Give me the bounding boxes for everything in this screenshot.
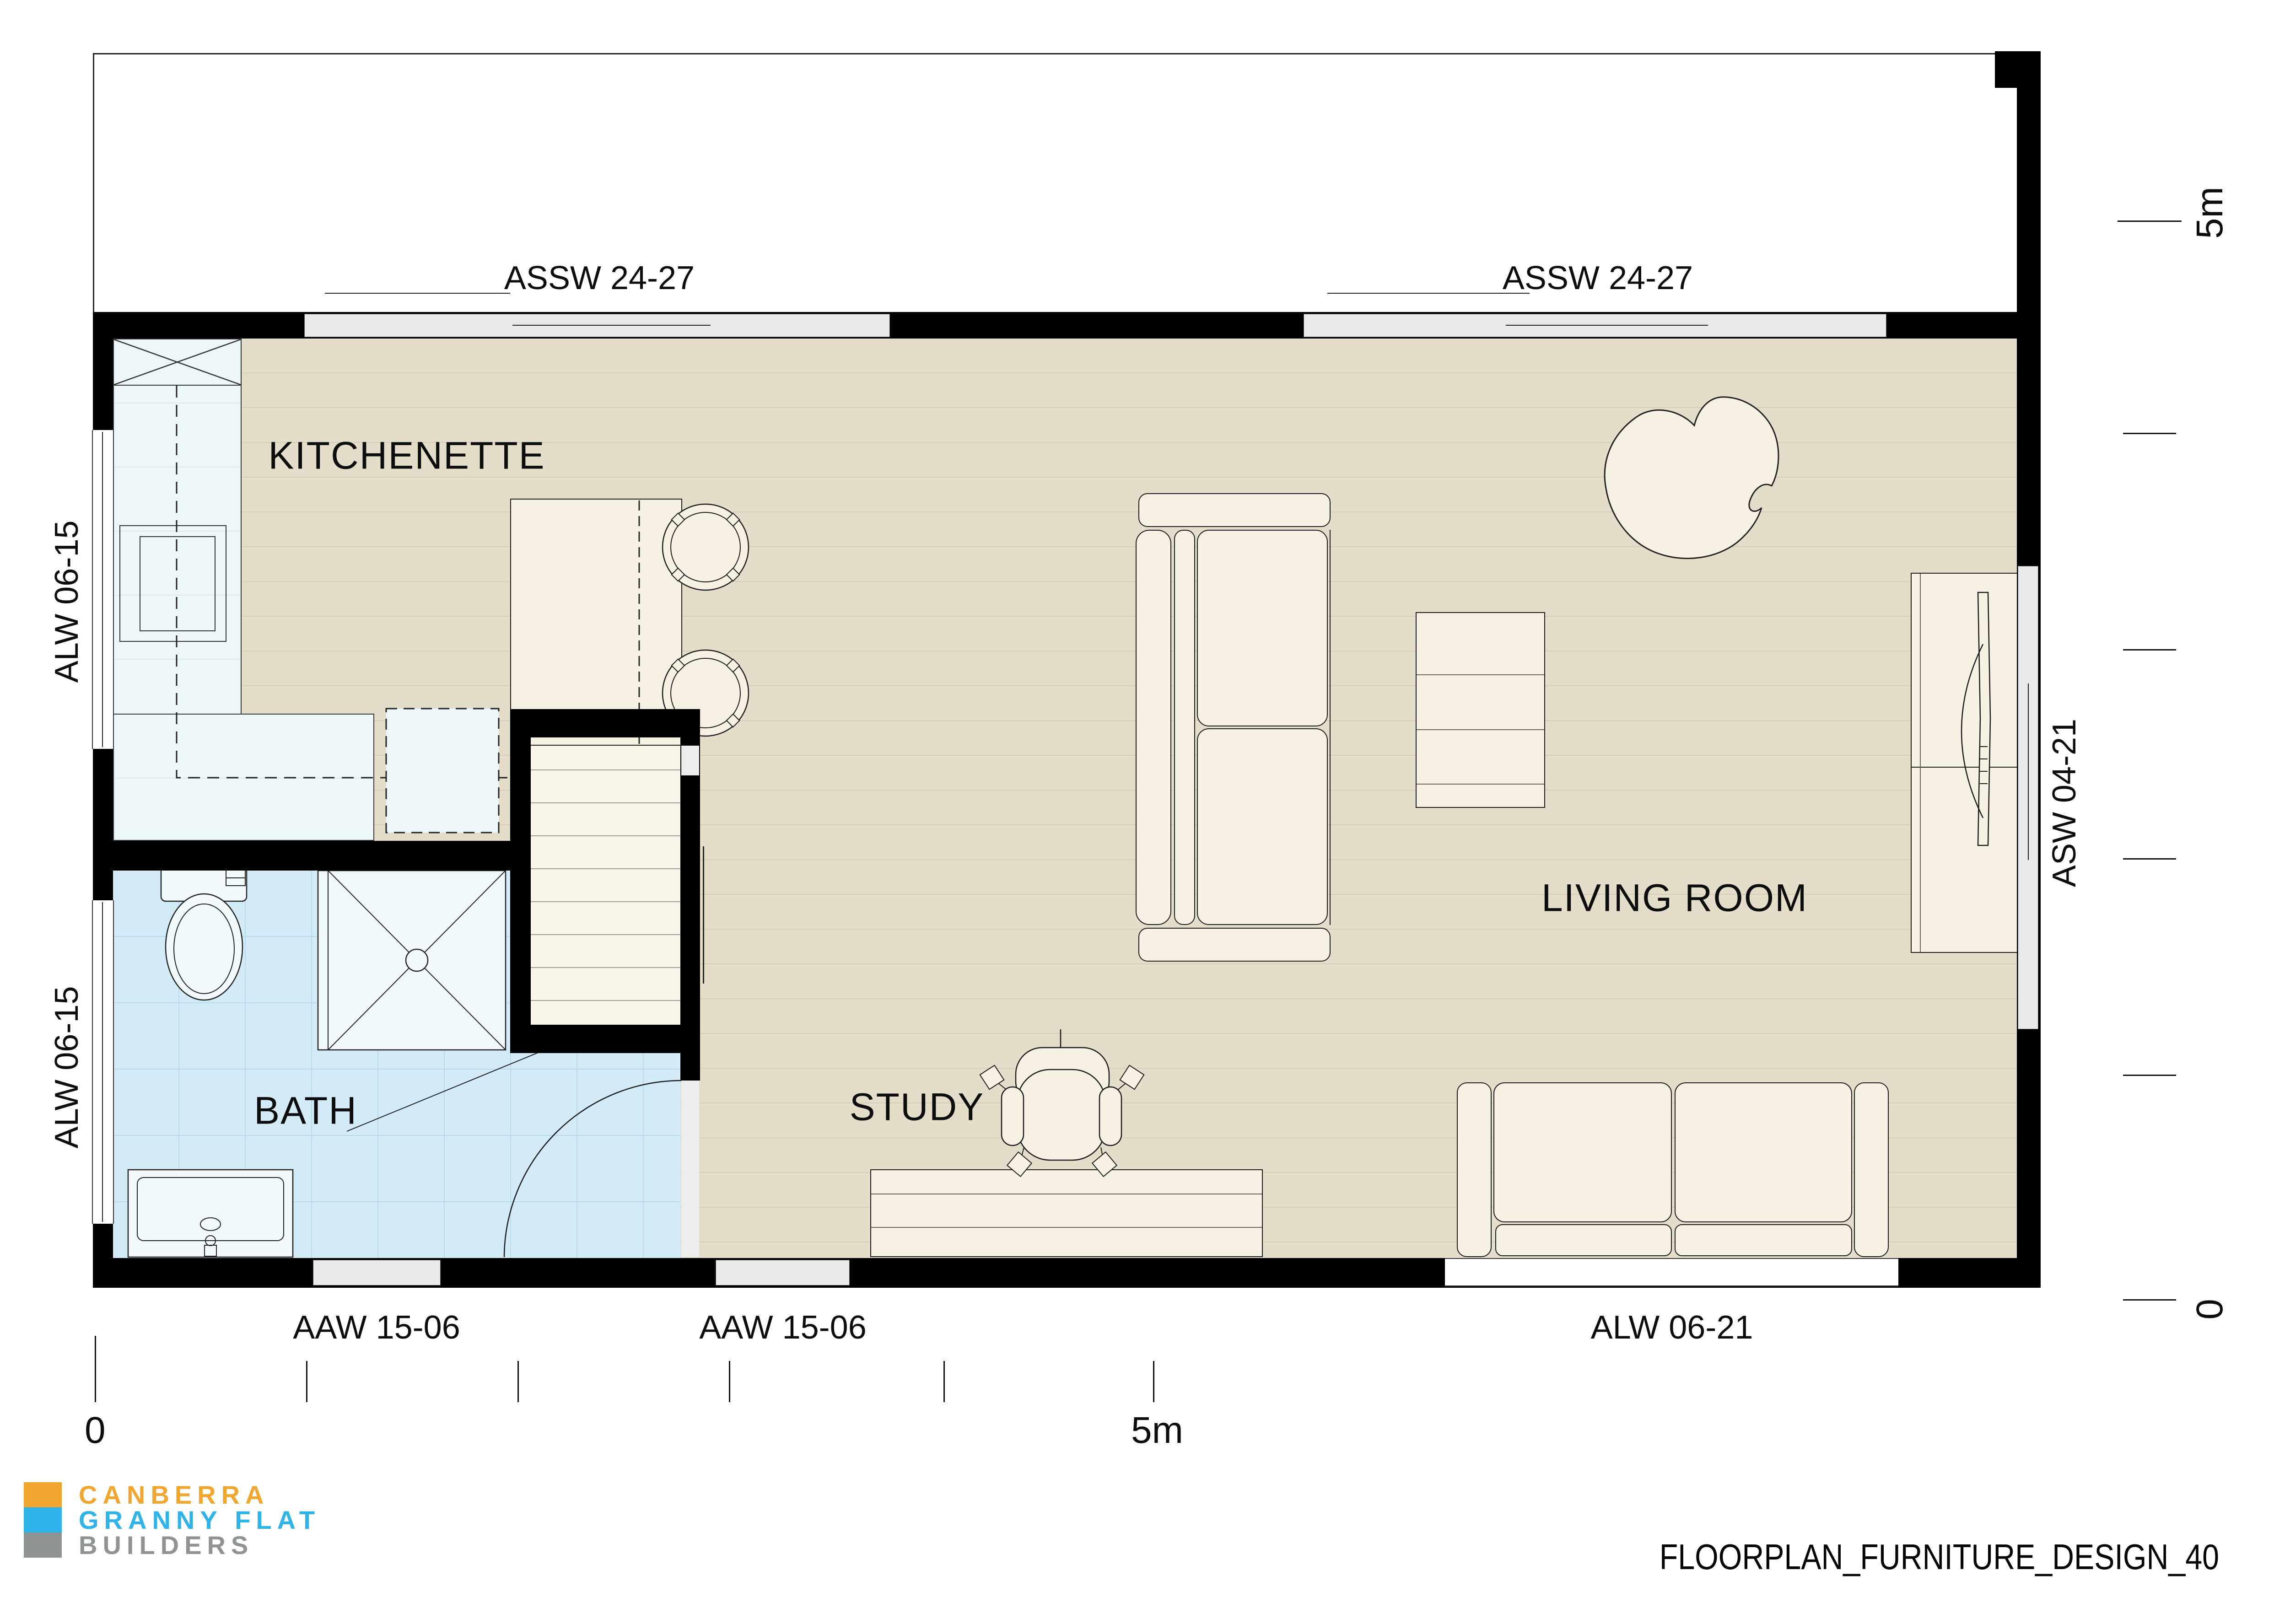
ruler-tick	[95, 1336, 96, 1402]
window-dim-line	[1327, 293, 1530, 294]
toilet-icon	[161, 865, 247, 1000]
tv-icon	[1961, 592, 1990, 845]
closet-opening	[681, 746, 699, 775]
ruler-tick	[2123, 858, 2176, 860]
bath-door-icon	[504, 1081, 683, 1257]
window-label-bottom-right: ALW 06-21	[1591, 1309, 1753, 1346]
wall-door-stub	[680, 1053, 700, 1081]
wall-closet-left	[510, 709, 531, 1053]
bath-door-threshold	[681, 1081, 699, 1257]
window-label-top-left: ASSW 24-27	[504, 259, 695, 297]
logo-bar-orange	[24, 1482, 62, 1507]
logo-bar-blue	[24, 1507, 62, 1533]
wall-bath-top	[113, 841, 510, 871]
logo-text-granny-flat: GRANNY FLAT	[79, 1507, 320, 1533]
window-dim-line	[325, 293, 510, 294]
wall-porch-corner	[1995, 51, 2041, 88]
window-bottom-mid	[716, 1260, 850, 1285]
logo-text-builders: BUILDERS	[79, 1533, 253, 1558]
room-label-living: LIVING ROOM	[1541, 876, 1808, 920]
ruler-tick	[943, 1361, 945, 1402]
window-mullion-line-left-lower	[102, 902, 103, 1222]
window-label-bottom-left: AAW 15-06	[293, 1309, 460, 1346]
ruler-tick	[1153, 1361, 1154, 1402]
plant-icon	[1605, 397, 1778, 559]
dishwasher-dashed-box	[386, 709, 499, 833]
room-label-bath: BATH	[254, 1089, 357, 1133]
ruler-tick	[2123, 433, 2176, 434]
wall-closet-top	[510, 709, 700, 737]
logo-bar-gray	[24, 1533, 62, 1558]
window-label-left-lower: ALW 06-15	[48, 986, 86, 1149]
room-label-kitchenette: KITCHENETTE	[268, 434, 545, 478]
ruler-label-5m: 5m	[1131, 1409, 1183, 1452]
stool-icon	[663, 504, 749, 736]
logo-text-canberra: CANBERRA	[79, 1482, 269, 1507]
wall-closet-bottom	[510, 1025, 700, 1053]
window-label-right: ASW 04-21	[2046, 719, 2083, 887]
ruler-label-zero: 0	[85, 1409, 106, 1452]
ruler-label-vertical-5m: 5m	[2188, 187, 2231, 239]
fridge-space-cross-icon	[114, 339, 241, 385]
ruler-tick	[2123, 1299, 2176, 1301]
ruler-tick	[2118, 220, 2182, 222]
window-left-lower	[92, 900, 114, 1224]
ruler-tick	[729, 1361, 730, 1402]
room-label-study: STUDY	[850, 1085, 985, 1129]
ruler-tick	[2123, 649, 2176, 651]
window-label-top-right: ASSW 24-27	[1503, 259, 1693, 297]
symbol-overlay	[0, 0, 2274, 1624]
shower-icon	[318, 871, 506, 1050]
ruler-label-vertical-zero: 0	[2188, 1299, 2231, 1320]
window-left-upper	[92, 430, 114, 749]
ruler-tick	[517, 1361, 519, 1402]
window-label-left-upper: ALW 06-15	[48, 521, 86, 683]
window-bottom-left	[313, 1260, 441, 1285]
vanity-sink-icon	[128, 1170, 293, 1257]
drawing-title: FLOORPLAN_FURNITURE_DESIGN_40	[1660, 1536, 2219, 1578]
bath-leader-line	[347, 1049, 548, 1131]
window-mullion-line-right	[2028, 683, 2029, 860]
desk-chair-icon	[980, 1029, 1144, 1177]
floorplan-canvas: KITCHENETTE LIVING ROOM BATH STUDY ASSW …	[0, 0, 2274, 1624]
ruler-tick	[2123, 1075, 2176, 1076]
ruler-tick	[306, 1361, 307, 1402]
window-mullion-line	[1506, 325, 1708, 326]
window-mullion-line-left-upper	[102, 432, 103, 747]
window-label-bottom-mid: AAW 15-06	[699, 1309, 866, 1346]
window-mullion-line	[512, 325, 711, 326]
window-bottom-right	[1445, 1258, 1898, 1286]
